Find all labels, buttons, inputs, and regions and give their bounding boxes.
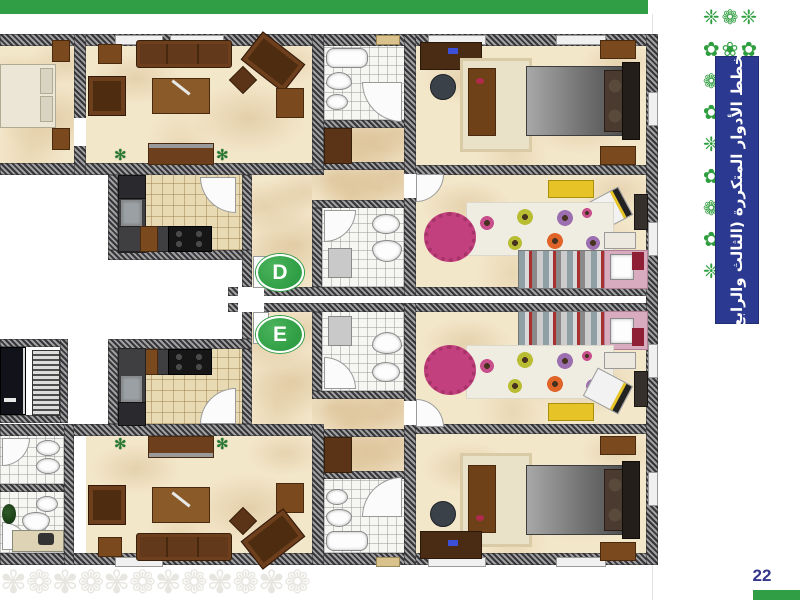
page-number: 22 (744, 566, 780, 586)
unit-d-label: D (272, 261, 287, 285)
bath-cabinet (328, 316, 352, 346)
bathtub (326, 48, 368, 68)
pillow (610, 254, 634, 280)
unit-e-label: E (273, 323, 287, 347)
sink (372, 214, 400, 234)
wardrobe (634, 194, 648, 230)
refrigerator (118, 175, 146, 199)
decor-item (476, 515, 484, 521)
desk-item (448, 540, 458, 546)
sink (36, 496, 58, 512)
window (648, 222, 658, 256)
wall (108, 349, 118, 424)
wall (0, 339, 62, 347)
dresser (276, 483, 304, 513)
flower-rug (466, 202, 614, 256)
round-table-pink (424, 212, 476, 262)
stove (168, 226, 212, 252)
wall (0, 415, 62, 423)
dressing-table (468, 465, 496, 533)
side-table (98, 537, 122, 557)
kitchen-sink (121, 200, 142, 226)
sofa (136, 533, 232, 561)
bed-item-red (632, 328, 644, 346)
bath-cabinet (328, 248, 352, 278)
pillow (40, 96, 53, 122)
toilet (326, 72, 352, 90)
wall (60, 339, 68, 423)
corridor-e-floor (312, 399, 404, 429)
door-opening (404, 401, 416, 425)
shower-head (38, 533, 54, 545)
closet-cabinet (324, 128, 352, 164)
sink (372, 362, 400, 382)
wall (0, 424, 324, 436)
refrigerator (118, 402, 146, 426)
plant-pot (2, 504, 16, 524)
wall (312, 200, 416, 208)
wall (64, 424, 74, 565)
side-banner-title: مخطط الأدوار المتكررة (الثالث والرابع) (728, 45, 746, 334)
wall (242, 310, 252, 339)
toilet (372, 332, 402, 354)
door-opening (74, 118, 86, 146)
dresser (276, 88, 304, 118)
wall (312, 391, 416, 399)
unit-e-badge: E (256, 316, 304, 353)
toilet (36, 440, 60, 456)
ornament-motif-icon: ❈❁❈ (703, 2, 759, 32)
wall (242, 250, 252, 287)
kids-desk (548, 180, 594, 198)
wall (242, 349, 252, 424)
door-opening (404, 174, 416, 198)
wall (312, 424, 324, 565)
pillow (610, 318, 634, 344)
nightstand (600, 146, 636, 165)
side-banner: مخطط الأدوار المتكررة (الثالث والرابع) (716, 57, 758, 323)
brochure-page: ✻ ✻ D (0, 0, 800, 600)
window (648, 472, 658, 506)
wall (404, 34, 416, 296)
floor-plan: ✻ ✻ D (0, 0, 660, 600)
kitchen-cabinet (140, 226, 158, 252)
closet-cabinet (324, 437, 352, 473)
chair-round (430, 501, 456, 527)
nightstand (600, 436, 636, 455)
elevator-door-mark (4, 398, 16, 402)
wall (74, 34, 86, 175)
elevator (0, 347, 26, 415)
door-opening (238, 303, 264, 312)
bathtub (326, 531, 368, 551)
window (556, 557, 606, 567)
sofa (136, 40, 232, 68)
footer-green-bar (753, 590, 800, 600)
window (556, 35, 606, 45)
chair-round (430, 74, 456, 100)
round-table-pink (424, 345, 476, 395)
nightstand (52, 40, 70, 62)
unit-d-badge: D (256, 254, 304, 291)
plant-icon: ✻ (216, 437, 229, 452)
wall (312, 429, 416, 437)
sink (326, 94, 348, 110)
desk-item (448, 48, 458, 54)
nightstand (600, 542, 636, 561)
armchair (88, 76, 126, 116)
sink (326, 489, 348, 505)
bed-item-red (632, 252, 644, 270)
stove (168, 349, 212, 375)
wall (312, 312, 322, 391)
bidet (36, 458, 60, 474)
window (648, 344, 658, 378)
nightstand (52, 128, 70, 150)
headboard (622, 461, 640, 539)
wall (242, 175, 252, 250)
wall (312, 34, 324, 170)
plant-icon: ✻ (114, 437, 127, 452)
wall (0, 484, 64, 492)
kids-dresser (604, 352, 636, 369)
pillow (40, 68, 53, 94)
corridor-d-floor (312, 170, 404, 200)
wall (108, 175, 118, 250)
footer-watermark: ✾❁✾❁✾❁✾❁✾❁✾❁ (0, 564, 500, 600)
window (376, 35, 400, 45)
kids-desk (548, 403, 594, 421)
side-table (98, 44, 122, 64)
coffee-table (152, 487, 210, 523)
wardrobe (634, 371, 648, 407)
tv-stand (148, 436, 214, 458)
coffee-table (152, 78, 210, 114)
kids-dresser (604, 232, 636, 249)
nightstand (600, 40, 636, 59)
wall (404, 303, 416, 565)
armchair (88, 485, 126, 525)
door-opening (238, 287, 264, 296)
kitchen-sink (121, 376, 142, 402)
window (648, 92, 658, 126)
plant-icon: ✻ (114, 148, 127, 163)
headboard (622, 62, 640, 140)
wall (312, 208, 322, 287)
decor-item (476, 78, 484, 84)
staircase (32, 350, 60, 416)
tv-stand (148, 143, 214, 165)
bed-striped (518, 250, 606, 289)
plant-icon: ✻ (216, 148, 229, 163)
